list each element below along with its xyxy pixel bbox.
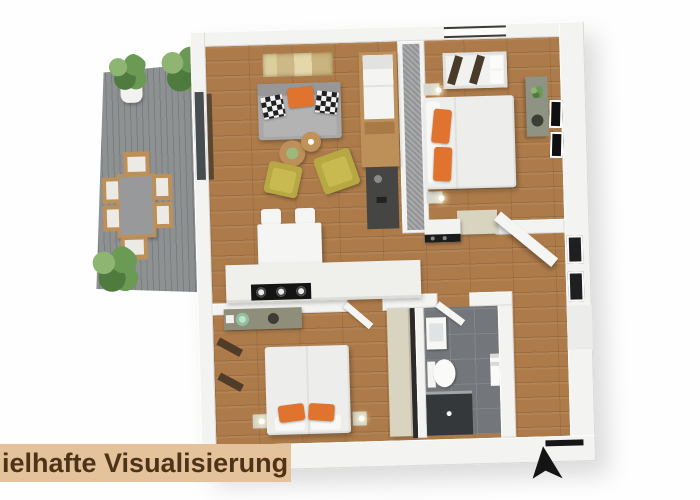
floorplan-visualization: ielhafte Visualisierung [0,0,700,500]
cooktop [251,283,311,301]
bathroom-wall-top-right [469,291,512,306]
wardrobe-rail [447,55,463,85]
burner [296,286,306,296]
bed-pillow-orange [433,147,452,182]
kitchen-lower-unit [366,166,400,229]
armchair-cushion [269,167,297,194]
bedside-lamp [359,415,365,421]
dresser [525,76,549,137]
burner [276,287,286,297]
banner: ielhafte Visualisierung [0,444,291,482]
table-decor-plate [286,147,298,159]
washing-machine-knob [431,236,435,240]
washbasin [426,317,447,350]
outdoor-dining-table [116,173,157,238]
sideboard [224,307,303,330]
outdoor-chair [102,177,120,203]
apartment-building [190,21,596,472]
dresser-plant [529,85,543,99]
kitchen-tall-unit [358,51,399,167]
double-bed [424,95,517,189]
bed-pillow-orange [431,108,452,144]
entrance-door-opening [567,305,593,350]
shower [426,390,473,435]
shower-drain [447,411,452,416]
window-bottom [545,439,583,446]
table-decor-cup [308,139,314,145]
orange-throw [287,86,315,109]
banner-label: ielhafte Visualisierung [2,448,288,478]
outdoor-chair [103,205,121,231]
chair-cushion [127,156,145,171]
wardrobe-box [490,55,503,68]
outdoor-chair [156,202,174,228]
open-wardrobe [443,51,508,89]
wardrobe-rail [469,55,485,85]
sideboard-bowl [268,313,279,324]
armchair [263,160,303,199]
window-top [444,25,506,38]
sideboard-plant [236,313,249,326]
duvet-fold [306,346,310,434]
double-bed [265,345,351,435]
kitchen-item [377,197,387,203]
window-right-1 [567,235,584,263]
chair-cushion [156,178,168,196]
chair-cushion [106,181,118,199]
sideboard-box [226,315,234,323]
chair-cushion [107,209,119,227]
floorplan-scene [79,18,606,482]
chair-cushion [157,206,169,224]
picture-frame [550,132,564,158]
dresser-bowl [531,114,543,126]
picture-frame [549,100,563,128]
outdoor-chair [123,151,150,174]
towel-radiator [490,354,500,386]
checkered-pillow [260,94,286,120]
fridge-top [363,55,395,120]
bed-pillow-orange [278,403,306,423]
washing-machine [424,219,461,243]
kitchen-item [374,175,382,183]
washbasin-bowl [429,323,443,341]
closet-doors [457,210,498,235]
shower-glass [426,390,472,394]
armchair-cushion [321,155,354,187]
outdoor-chair [155,174,173,200]
window-right-2 [568,271,585,301]
wardrobe-box [490,70,503,83]
wall-art [263,52,334,77]
checkered-pillow [315,90,339,114]
burner [256,287,266,297]
kitchen-shelf [364,121,394,134]
duvet-fold [454,97,459,189]
bed-pillow-orange [308,403,335,422]
